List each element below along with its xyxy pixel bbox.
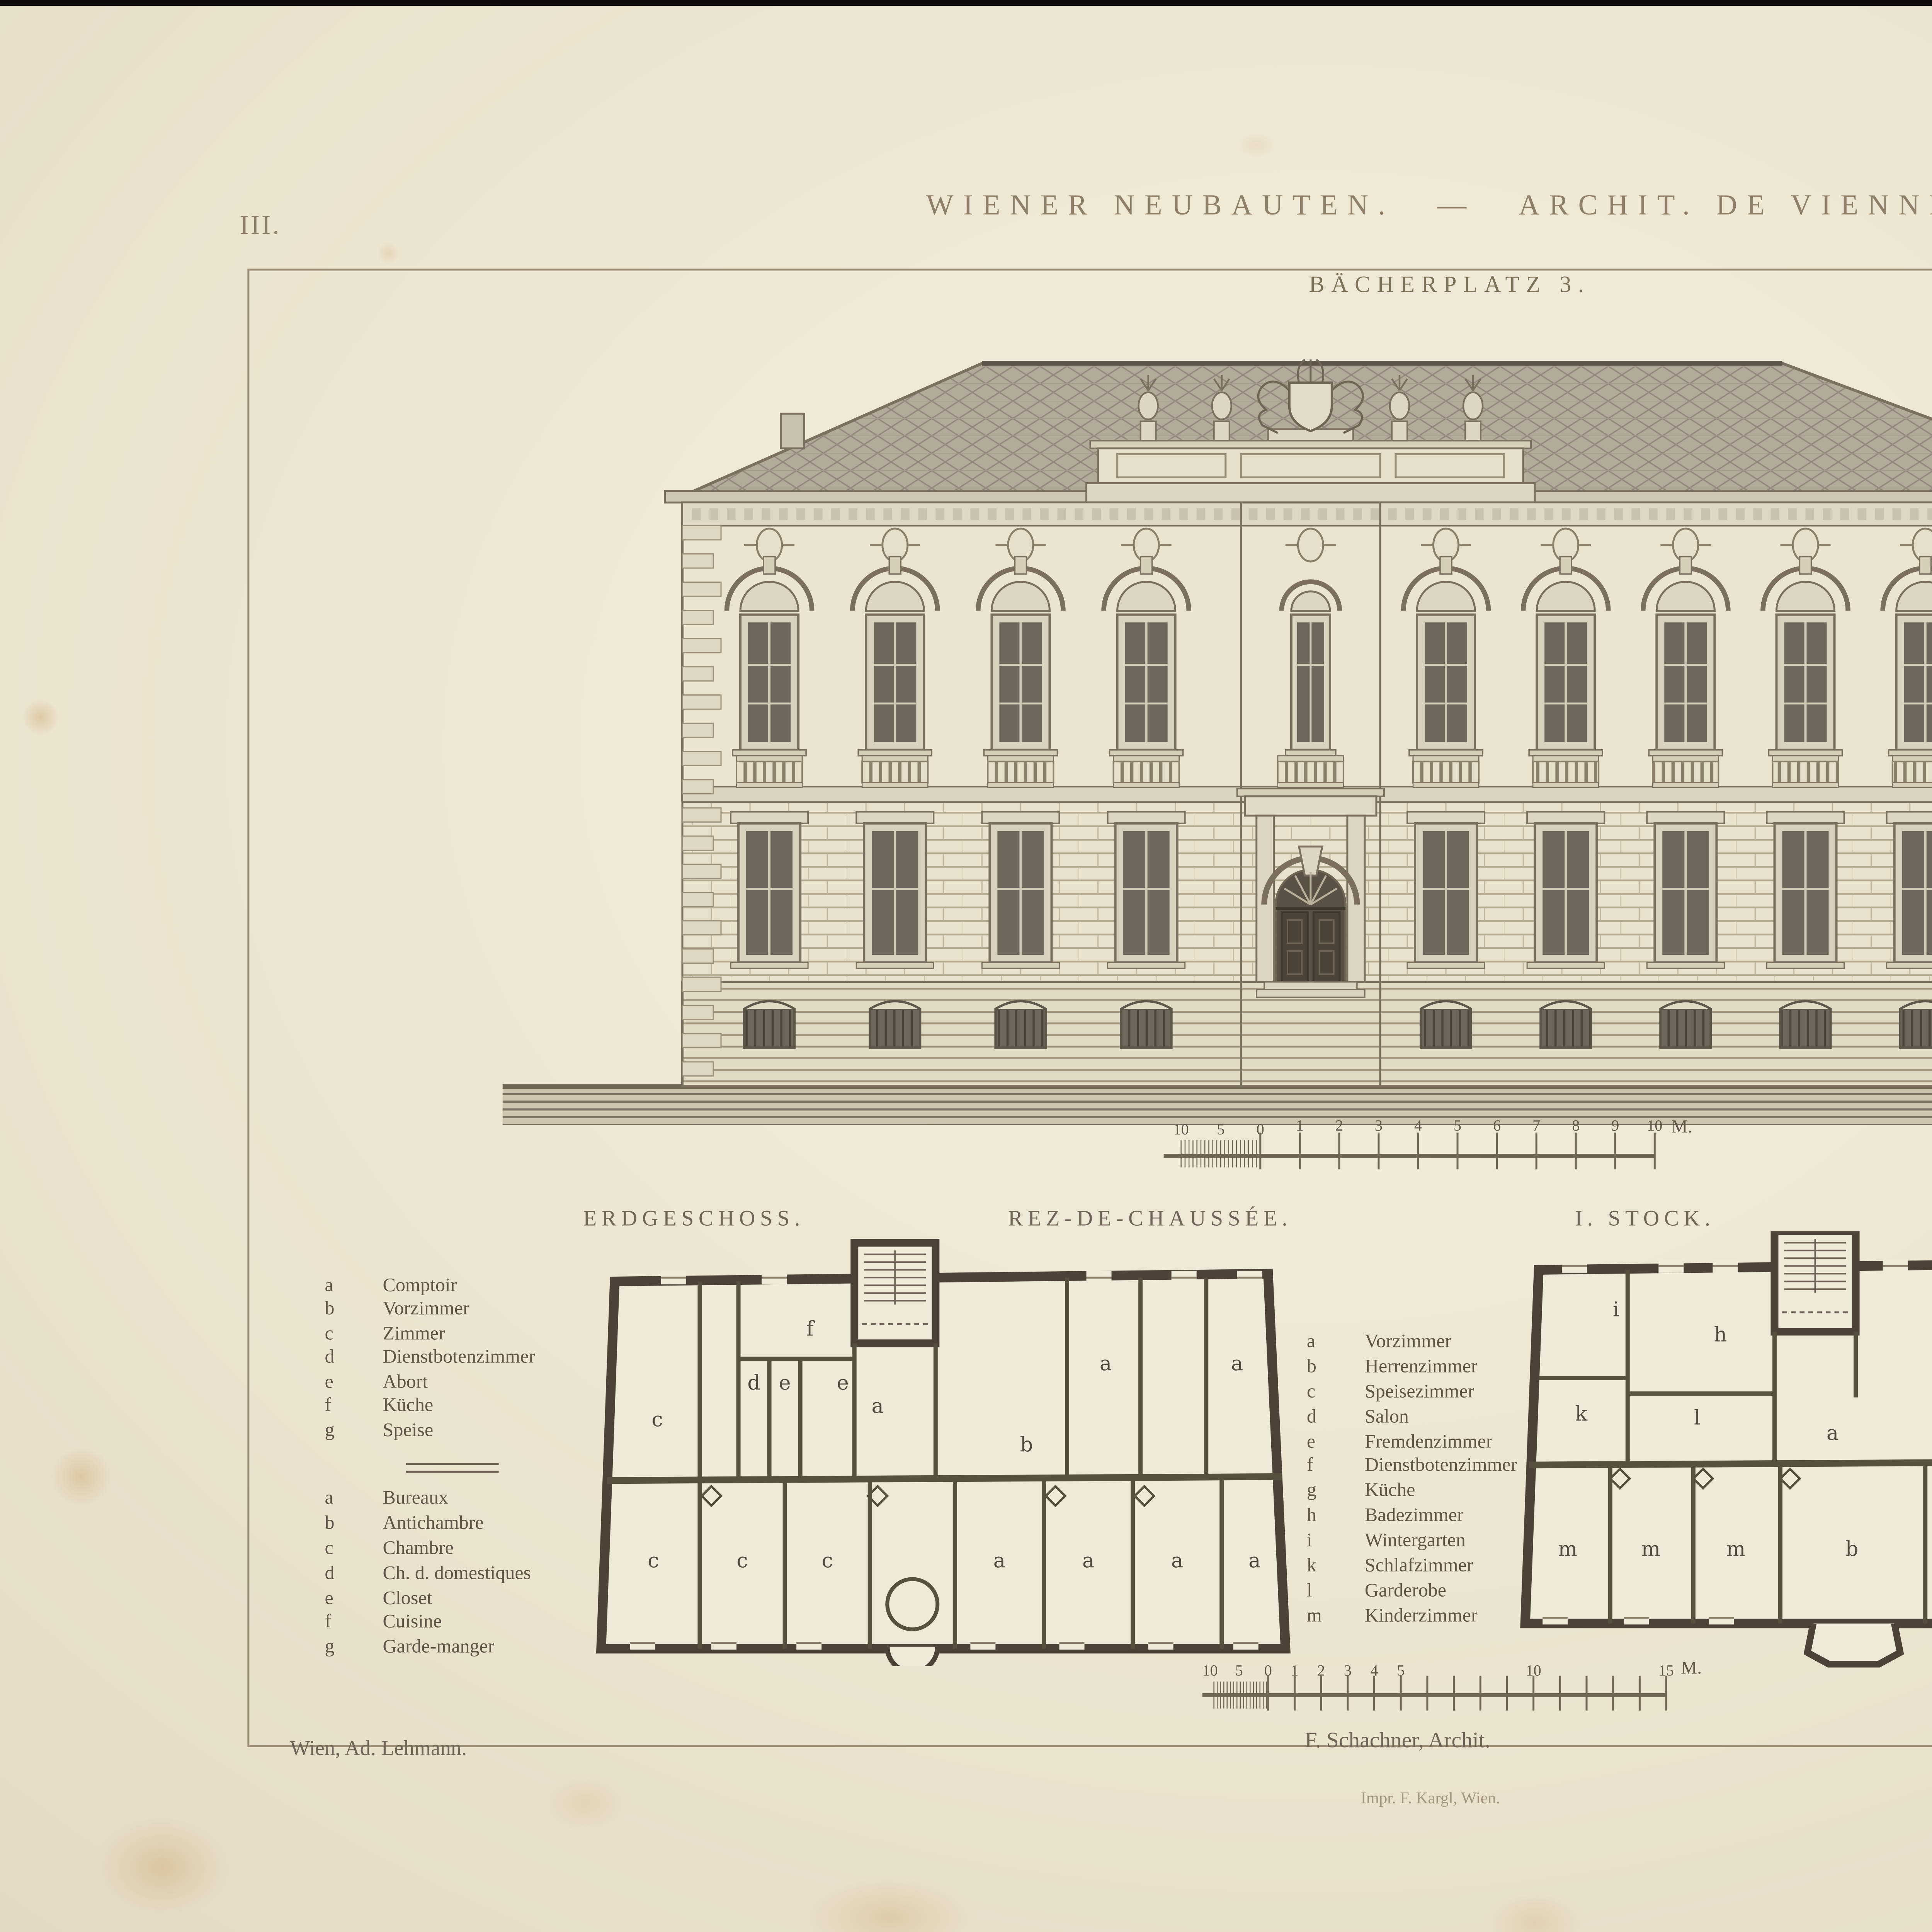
room-letter: m	[1558, 1537, 1577, 1561]
legend-letter: a	[325, 1276, 383, 1297]
room-letter: a	[1171, 1549, 1183, 1573]
legend-letter: i	[1307, 1531, 1365, 1552]
scale-label: 4	[1414, 1117, 1422, 1134]
scale-label: 2	[1335, 1117, 1343, 1134]
legend-letter: b	[325, 1300, 383, 1321]
legend-letter: e	[325, 1372, 383, 1393]
legend-row: dCh. d. domestiques	[325, 1563, 531, 1588]
legend-label: Cuisine	[383, 1613, 442, 1634]
legend-divider-rule	[406, 1463, 499, 1473]
plate-title-german: WIENER NEUBAUTEN.	[926, 191, 1395, 222]
legend-row: gGarde-manger	[325, 1638, 531, 1662]
room-letter: a	[1231, 1352, 1243, 1375]
room-letter: a	[872, 1394, 884, 1418]
ground-floor-plan: fdeeabcaacccaaaa	[584, 1235, 1322, 1666]
legend-label: Antichambre	[383, 1513, 484, 1534]
legend-letter: g	[325, 1420, 383, 1441]
room-letter: c	[821, 1549, 833, 1573]
legend-row: eAbort	[325, 1372, 535, 1396]
legend-row: cSpeisezimmer	[1307, 1381, 1517, 1406]
elevation-scale-bar: 105012345678910M.	[1148, 1117, 1728, 1175]
legend-label: Küche	[383, 1396, 434, 1417]
legend-letter: f	[325, 1613, 383, 1634]
foxing-stain	[15, 692, 66, 742]
legend-label: Küche	[1365, 1481, 1415, 1502]
plate-subtitle: BÄCHERPLATZ 3.	[812, 270, 1932, 299]
scale-label: 2	[1317, 1662, 1325, 1679]
scale-label: 5	[1454, 1117, 1461, 1134]
legend-letter: c	[325, 1324, 383, 1345]
scale-label: 5	[1217, 1121, 1225, 1138]
legend-label: Dienstbotenzimmer	[1365, 1456, 1517, 1478]
scale-label: M.	[1681, 1662, 1702, 1678]
legend-letter: g	[325, 1638, 383, 1659]
scale-label: 3	[1375, 1117, 1383, 1134]
legend-row: aBureaux	[325, 1488, 531, 1513]
scale-label: 6	[1493, 1117, 1501, 1134]
legend-row: cZimmer	[325, 1324, 535, 1348]
legend-label: Salon	[1365, 1406, 1409, 1428]
legend-label: Ch. d. domestiques	[383, 1563, 531, 1584]
legend-letter: a	[1307, 1332, 1365, 1353]
legend-label: Schlafzimmer	[1365, 1556, 1473, 1577]
legend-label: Closet	[383, 1588, 432, 1609]
room-letter: b	[1020, 1433, 1033, 1457]
legend-letter: a	[325, 1488, 383, 1510]
legend-row: bAntichambre	[325, 1513, 531, 1538]
foxing-stain	[70, 1798, 255, 1932]
legend-row: eFremdenzimmer	[1307, 1431, 1517, 1456]
legend-letter: b	[1307, 1357, 1365, 1378]
scale-label: 5	[1397, 1662, 1405, 1679]
room-letter: a	[1827, 1421, 1838, 1445]
legend-label: Badezimmer	[1365, 1506, 1464, 1527]
legend-row: fDienstbotenzimmer	[1307, 1456, 1517, 1481]
legend-row: bHerrenzimmer	[1307, 1357, 1517, 1381]
foxing-stain	[39, 1434, 124, 1519]
legend-label: Chambre	[383, 1538, 454, 1559]
legend-label: Garderobe	[1365, 1581, 1446, 1602]
legend-row: hBadezimmer	[1307, 1506, 1517, 1531]
scale-label: 3	[1344, 1662, 1352, 1679]
legend-ground-french: aBureauxbAntichambrecChambredCh. d. dome…	[325, 1488, 531, 1663]
room-letter: i	[1613, 1298, 1619, 1321]
scale-label: 1	[1296, 1117, 1304, 1134]
legend-letter: d	[325, 1563, 383, 1584]
room-letter: h	[1714, 1323, 1727, 1346]
room-letter: m	[1726, 1537, 1746, 1561]
legend-row: aComptoir	[325, 1276, 535, 1299]
legend-letter: g	[1307, 1481, 1365, 1502]
legend-row: fKüche	[325, 1396, 535, 1420]
legend-label: Fremdenzimmer	[1365, 1431, 1493, 1452]
room-letter: a	[1100, 1352, 1112, 1375]
legend-row: aVorzimmer	[1307, 1332, 1517, 1356]
legend-label: Zimmer	[383, 1324, 445, 1345]
scan-border-top	[0, 0, 1932, 6]
legend-label: Wintergarten	[1365, 1531, 1466, 1552]
room-letter: a	[1082, 1549, 1094, 1573]
plans-scale-bar: 1050123451015M.	[1191, 1662, 1709, 1716]
legend-label: Speise	[383, 1420, 434, 1441]
room-letter: a	[993, 1549, 1005, 1573]
legend-ground-german: aComptoirbVorzimmercZimmerdDienstbotenzi…	[325, 1276, 535, 1444]
plate-title: WIENER NEUBAUTEN.—ARCHIT. DE VIENNE.	[580, 191, 1932, 224]
foxing-stain	[526, 1763, 646, 1844]
series-number: III.	[240, 213, 281, 243]
scale-label: 5	[1235, 1662, 1243, 1679]
legend-letter: k	[1307, 1556, 1365, 1577]
legend-row: cChambre	[325, 1538, 531, 1563]
plan-outline	[601, 1274, 1286, 1648]
legend-letter: e	[1307, 1431, 1365, 1452]
scanned-plate: III. WIENER NEUBAUTEN.—ARCHIT. DE VIENNE…	[0, 0, 1932, 1932]
legend-label: Dienstbotenzimmer	[383, 1348, 536, 1369]
legend-row: kSchlafzimmer	[1307, 1556, 1517, 1581]
ground-plan-title-french: REZ-DE-CHAUSSÉE.	[957, 1208, 1344, 1231]
legend-first-floor-german: aVorzimmerbHerrenzimmercSpeisezimmerdSal…	[1307, 1332, 1517, 1631]
legend-letter: e	[325, 1588, 383, 1609]
room-letter: e	[779, 1371, 791, 1395]
legend-label: Comptoir	[383, 1276, 457, 1297]
plate-title-french: ARCHIT. DE VIENNE.	[1519, 191, 1932, 222]
legend-letter: c	[325, 1538, 383, 1559]
legend-label: Vorzimmer	[383, 1300, 469, 1321]
legend-letter: b	[325, 1513, 383, 1534]
first-floor-plan: ihklagfemmmbcd	[1504, 1231, 1932, 1670]
bay-window	[1808, 1624, 1900, 1664]
stairwell	[1774, 1231, 1855, 1332]
legend-letter: f	[325, 1396, 383, 1417]
ground-plan-title-german: ERDGESCHOSS.	[501, 1208, 888, 1231]
foxing-stain	[373, 238, 404, 269]
room-letter: m	[1641, 1537, 1660, 1561]
stairwell	[854, 1243, 935, 1343]
scale-label: 4	[1371, 1662, 1378, 1679]
legend-row: gSpeise	[325, 1420, 535, 1444]
room-letter: b	[1845, 1537, 1859, 1561]
legend-row: eCloset	[325, 1588, 531, 1612]
legend-label: Abort	[383, 1372, 428, 1393]
legend-letter: d	[325, 1348, 383, 1369]
chimney	[781, 413, 804, 448]
room-letter: a	[1248, 1549, 1260, 1573]
legend-letter: f	[1307, 1456, 1365, 1478]
legend-row: mKinderzimmer	[1307, 1606, 1517, 1631]
first-floor-title-german: I. STOCK.	[1490, 1208, 1799, 1231]
legend-letter: m	[1307, 1606, 1365, 1627]
scale-label: 10	[1173, 1121, 1189, 1138]
legend-label: Herrenzimmer	[1365, 1357, 1478, 1378]
scale-label: 7	[1532, 1117, 1540, 1134]
plan-outline	[1525, 1262, 1932, 1623]
title-separator: —	[1437, 191, 1476, 222]
first-floor-title-french: Ier ETAGE.	[1875, 1208, 1932, 1235]
legend-label: Garde-manger	[383, 1638, 495, 1659]
legend-letter: l	[1307, 1581, 1365, 1602]
room-letter: e	[837, 1371, 849, 1395]
scale-label: 10	[1526, 1662, 1541, 1679]
room-letter: c	[651, 1408, 663, 1431]
room-letter: c	[736, 1549, 748, 1573]
legend-letter: c	[1307, 1381, 1365, 1403]
legend-row: dDienstbotenzimmer	[325, 1348, 535, 1372]
legend-row: iWintergarten	[1307, 1531, 1517, 1556]
scale-label: 15	[1658, 1662, 1674, 1679]
legend-label: Bureaux	[383, 1488, 449, 1510]
room-letter: l	[1694, 1406, 1701, 1429]
legend-letter: d	[1307, 1406, 1365, 1428]
legend-row: lGarderobe	[1307, 1581, 1517, 1605]
attic-parapet	[1087, 440, 1535, 502]
scale-label: 10	[1202, 1662, 1218, 1679]
scale-label: 10	[1647, 1117, 1662, 1134]
legend-letter: h	[1307, 1506, 1365, 1527]
scale-label: 8	[1572, 1117, 1580, 1134]
legend-row: fCuisine	[325, 1613, 531, 1638]
printer-credit: Impr. F. Kargl, Wien.	[1237, 1788, 1624, 1807]
legend-label: Vorzimmer	[1365, 1332, 1451, 1353]
legend-row: gKüche	[1307, 1481, 1517, 1506]
room-letter: c	[648, 1549, 659, 1573]
legend-label: Kinderzimmer	[1365, 1606, 1478, 1627]
legend-label: Speisezimmer	[1365, 1381, 1474, 1403]
scale-label: M.	[1671, 1117, 1692, 1137]
scale-label: 9	[1611, 1117, 1619, 1134]
legend-row: bVorzimmer	[325, 1300, 535, 1324]
foxing-stain	[1230, 128, 1284, 162]
scale-label: 1	[1291, 1662, 1298, 1679]
publisher-credit: Wien, Ad. Lehmann.	[290, 1738, 467, 1761]
building-elevation	[499, 340, 1932, 1129]
architect-credit: F. Schachner, Archit.	[1108, 1730, 1688, 1753]
room-letter: k	[1575, 1402, 1588, 1425]
legend-row: dSalon	[1307, 1406, 1517, 1431]
room-letter: d	[747, 1371, 760, 1395]
